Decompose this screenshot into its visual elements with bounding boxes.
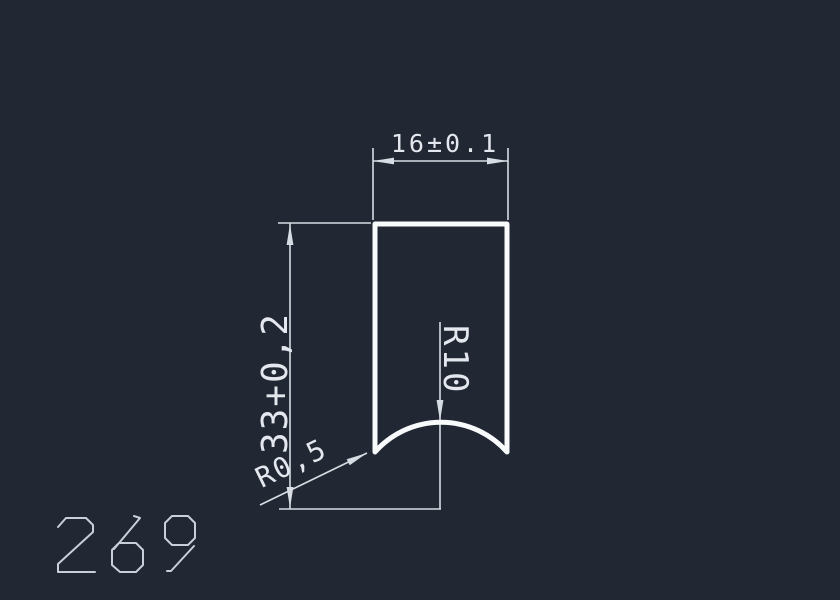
arrowhead-top — [287, 224, 294, 245]
width-dimension-label: 16±0.1 — [391, 129, 499, 158]
digit-9 — [165, 516, 195, 571]
height-dimension-label: 33+0,2 — [255, 312, 296, 454]
arrowhead-radius — [437, 400, 444, 421]
part-number — [58, 516, 195, 572]
arrowhead-fillet — [347, 453, 367, 465]
drawing-viewport[interactable]: 16±0.1 33+0,2 R10 R0,5 269 — [0, 0, 840, 600]
arrowhead-left — [373, 158, 394, 165]
radius-dimension-label: R10 — [435, 325, 475, 395]
digit-2 — [58, 518, 95, 572]
radius-dimension-label-group: R10 — [435, 325, 475, 421]
cad-canvas[interactable]: 16±0.1 33+0,2 R10 R0,5 269 — [0, 0, 840, 600]
arrowhead-right — [487, 158, 508, 165]
digit-6 — [112, 516, 143, 572]
width-dimension: 16±0.1 — [373, 129, 508, 220]
